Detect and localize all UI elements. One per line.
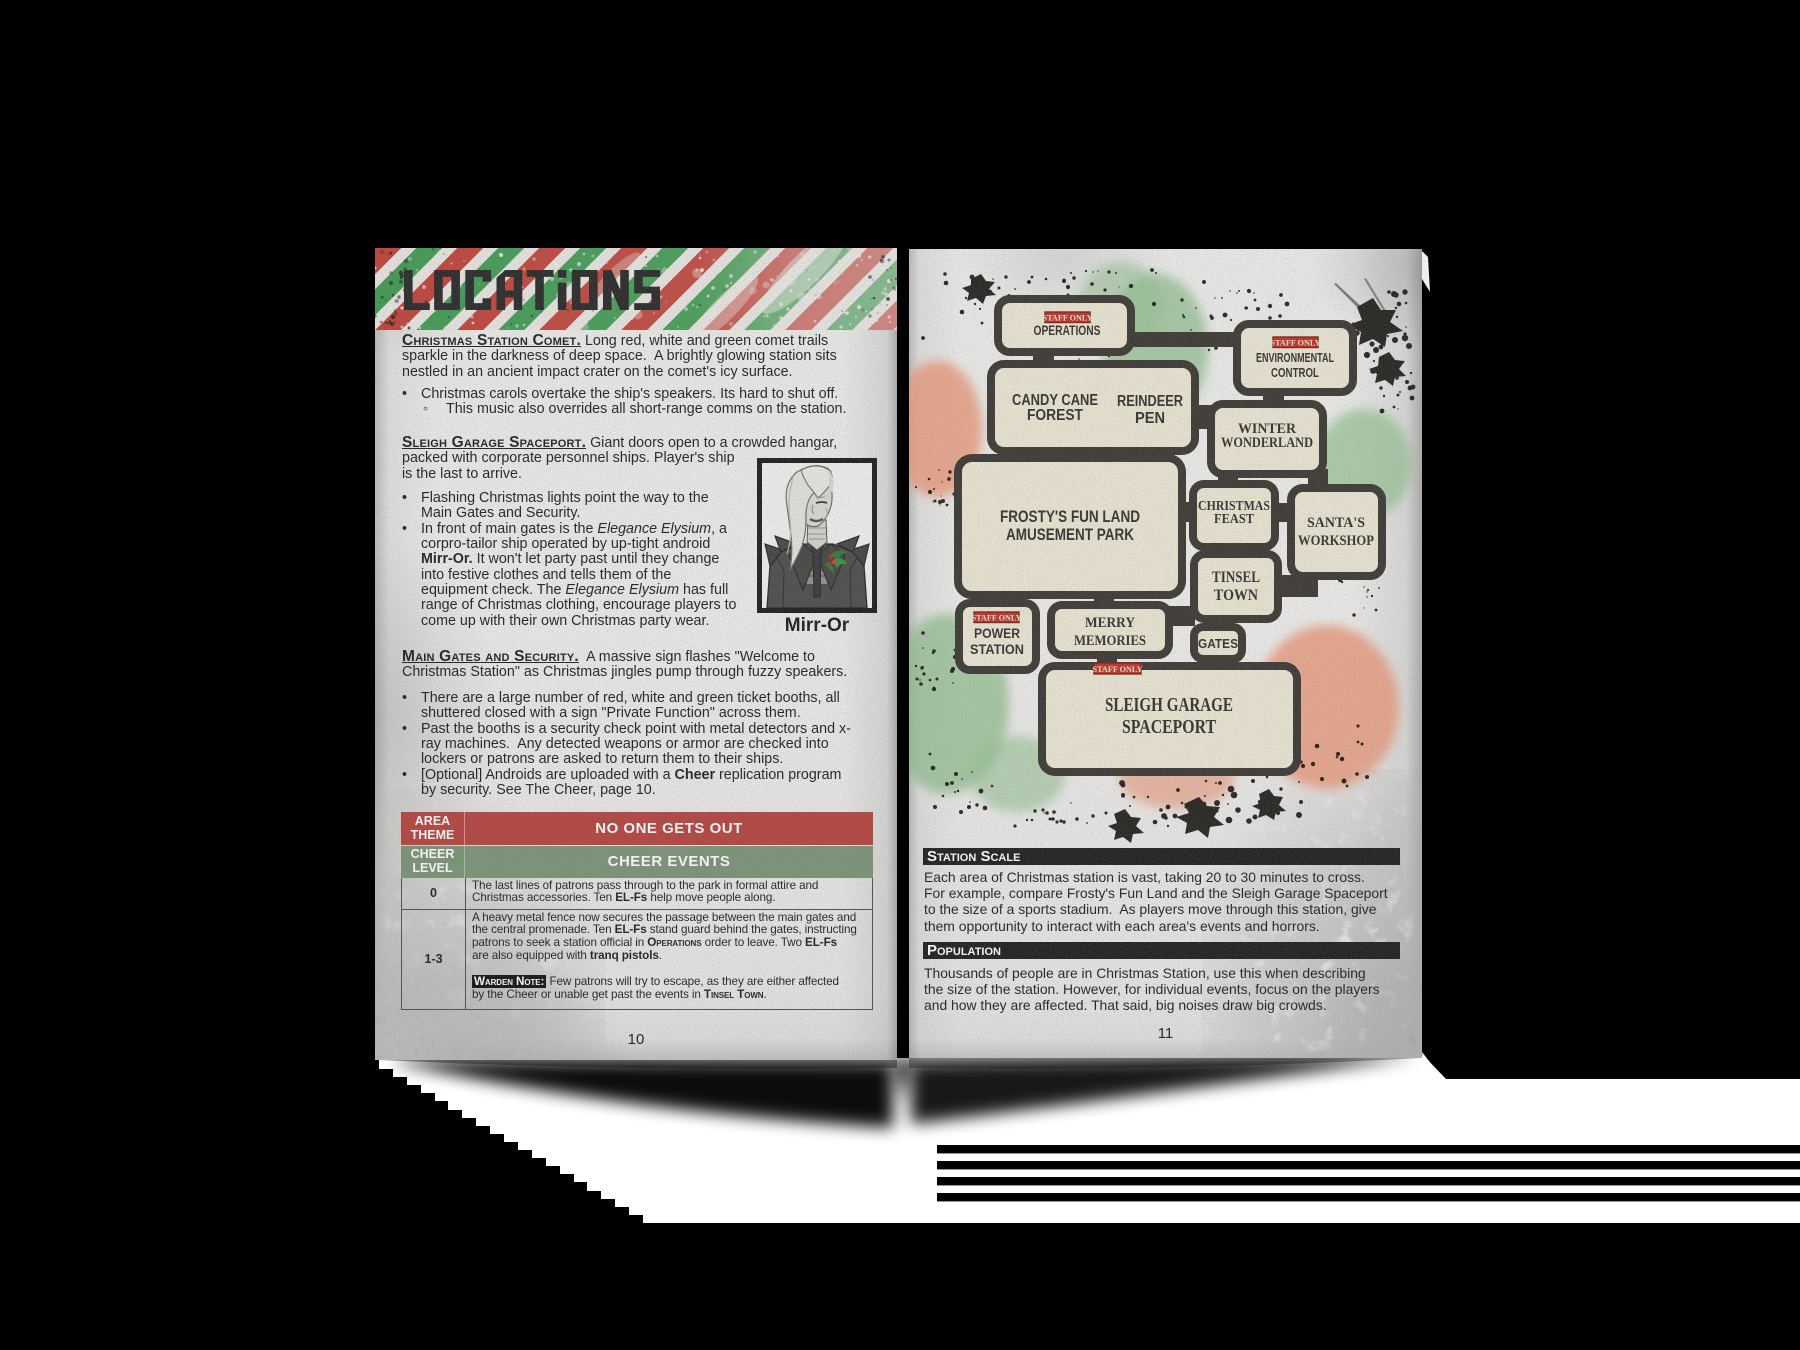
svg-text:POWER: POWER xyxy=(974,626,1020,641)
svg-text:STATION: STATION xyxy=(970,642,1024,657)
svg-text:GATES: GATES xyxy=(1198,636,1238,651)
svg-text:STAFF ONLY: STAFF ONLY xyxy=(1271,339,1321,348)
svg-text:STAFF ONLY: STAFF ONLY xyxy=(972,614,1022,623)
svg-text:MEMORIES: MEMORIES xyxy=(1074,633,1146,649)
svg-text:OPERATIONS: OPERATIONS xyxy=(1034,322,1101,338)
svg-text:FOREST: FOREST xyxy=(1027,407,1083,424)
svg-text:FROSTY'S FUN LAND: FROSTY'S FUN LAND xyxy=(1000,507,1140,526)
svg-text:CONTROL: CONTROL xyxy=(1271,366,1319,380)
svg-text:SANTA'S: SANTA'S xyxy=(1307,515,1365,531)
svg-text:PEN: PEN xyxy=(1135,410,1165,427)
svg-text:ENVIRONMENTAL: ENVIRONMENTAL xyxy=(1256,351,1334,365)
svg-text:MERRY: MERRY xyxy=(1085,615,1135,631)
svg-text:TOWN: TOWN xyxy=(1214,587,1258,604)
svg-text:WORKSHOP: WORKSHOP xyxy=(1298,533,1374,549)
svg-text:FEAST: FEAST xyxy=(1214,511,1254,526)
svg-text:AMUSEMENT PARK: AMUSEMENT PARK xyxy=(1006,525,1135,544)
svg-text:STAFF ONLY: STAFF ONLY xyxy=(1093,665,1143,674)
svg-text:SPACEPORT: SPACEPORT xyxy=(1122,716,1217,738)
svg-text:SLEIGH GARAGE: SLEIGH GARAGE xyxy=(1105,694,1233,716)
svg-text:TINSEL: TINSEL xyxy=(1212,569,1260,586)
svg-text:REINDEER: REINDEER xyxy=(1117,393,1183,410)
svg-text:WONDERLAND: WONDERLAND xyxy=(1221,435,1313,451)
